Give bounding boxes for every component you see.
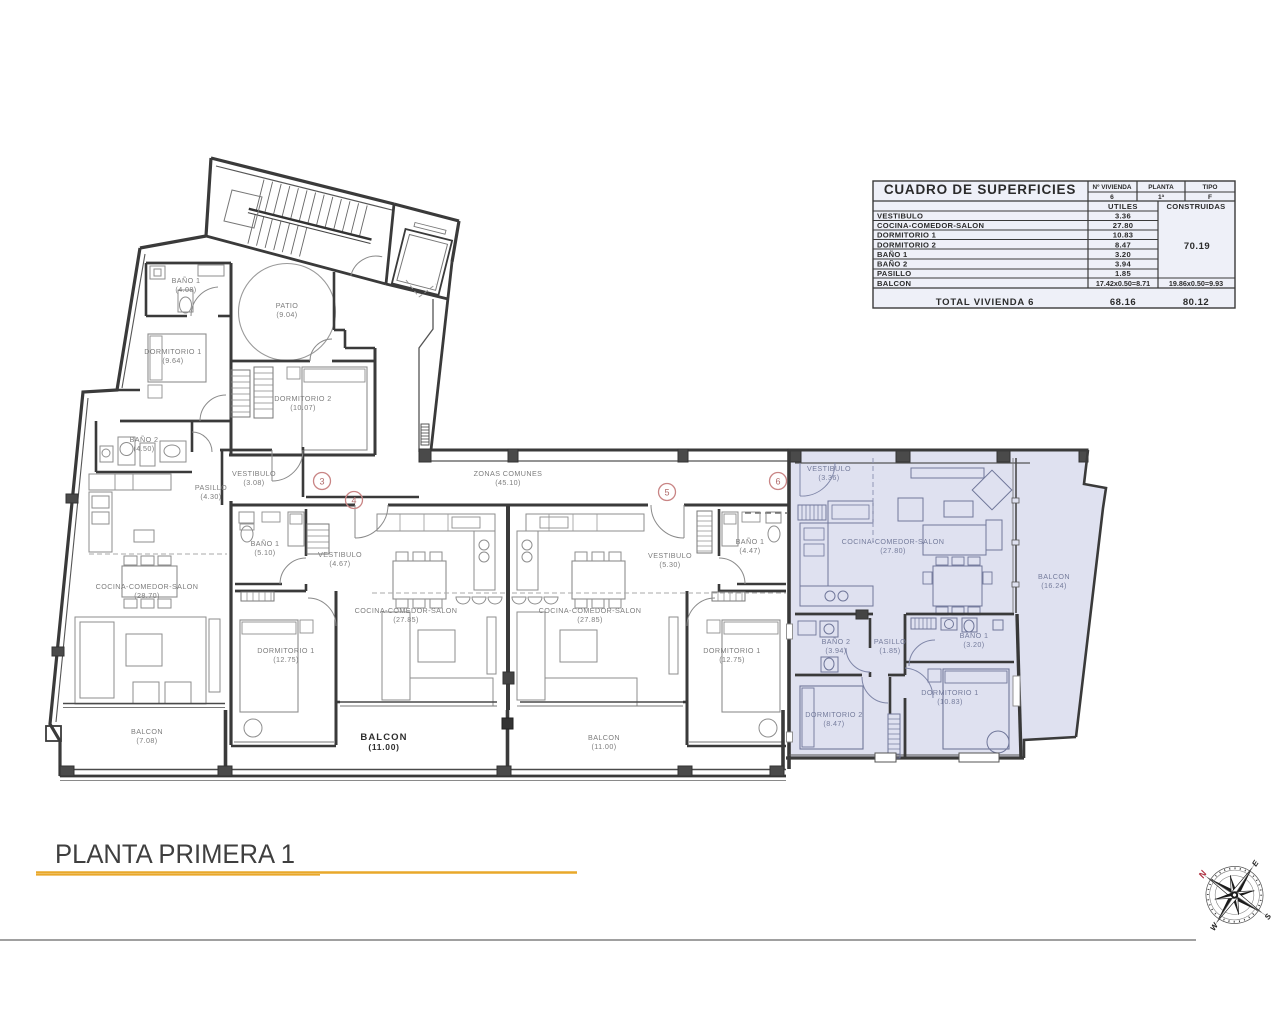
svg-text:BALCON: BALCON [877,279,911,288]
svg-text:8.47: 8.47 [1115,240,1131,249]
svg-text:(10.07): (10.07) [290,403,316,412]
svg-text:3: 3 [319,477,324,487]
svg-text:PASILLO: PASILLO [874,637,906,646]
svg-text:(27.85): (27.85) [393,615,419,624]
svg-text:1.85: 1.85 [1115,269,1131,278]
svg-text:TIPO: TIPO [1203,184,1218,191]
svg-text:(5.30): (5.30) [659,560,680,569]
svg-text:(9.64): (9.64) [162,356,183,365]
svg-text:3.36: 3.36 [1115,212,1131,221]
svg-text:1ª: 1ª [1158,194,1165,201]
svg-text:PATIO: PATIO [276,301,299,310]
svg-text:(27.80): (27.80) [880,546,906,555]
svg-text:(4.67): (4.67) [329,559,350,568]
svg-text:DORMITORIO 1: DORMITORIO 1 [877,231,937,240]
svg-text:(10.83): (10.83) [937,697,963,706]
svg-text:(12.75): (12.75) [719,655,745,664]
svg-text:17.42x0.50=8.71: 17.42x0.50=8.71 [1096,279,1150,288]
svg-text:COCINA-COMEDOR-SALON: COCINA-COMEDOR-SALON [877,221,984,230]
svg-text:80.12: 80.12 [1183,297,1209,308]
svg-text:DORMITORIO 1: DORMITORIO 1 [921,688,978,697]
svg-text:BALCON: BALCON [131,727,163,736]
svg-text:BAÑO 2: BAÑO 2 [822,637,851,646]
svg-text:19.86x0.50=9.93: 19.86x0.50=9.93 [1169,279,1223,288]
svg-text:(8.47): (8.47) [823,719,844,728]
svg-text:(4.08): (4.08) [175,285,196,294]
svg-text:6: 6 [1110,194,1114,201]
svg-text:BALCON: BALCON [1038,572,1070,581]
svg-text:(4.50): (4.50) [133,444,154,453]
svg-text:VESTIBULO: VESTIBULO [648,551,692,560]
svg-text:27.80: 27.80 [1113,221,1134,230]
svg-text:(1.85): (1.85) [879,646,900,655]
svg-text:(4.30): (4.30) [200,492,221,501]
svg-text:BAÑO 1: BAÑO 1 [251,539,280,548]
svg-text:(3.36): (3.36) [818,473,839,482]
svg-text:3.20: 3.20 [1115,250,1131,259]
svg-text:(4.47): (4.47) [739,546,760,555]
svg-text:(11.00): (11.00) [368,742,399,752]
svg-text:(3.20): (3.20) [963,640,984,649]
svg-text:COCINA-COMEDOR-SALON: COCINA-COMEDOR-SALON [539,606,642,615]
svg-text:(12.75): (12.75) [273,655,299,664]
svg-text:(7.08): (7.08) [136,736,157,745]
svg-text:DORMITORIO 2: DORMITORIO 2 [877,240,936,249]
svg-text:Nº VIVIENDA: Nº VIVIENDA [1093,184,1132,191]
svg-text:6: 6 [775,477,780,487]
svg-text:BALCON: BALCON [588,733,620,742]
svg-text:COCINA-COMEDOR-SALON: COCINA-COMEDOR-SALON [842,537,945,546]
svg-text:VESTIBULO: VESTIBULO [318,550,362,559]
svg-text:CUADRO DE SUPERFICIES: CUADRO DE SUPERFICIES [884,182,1076,197]
svg-text:(9.04): (9.04) [276,310,297,319]
svg-text:VESTIBULO: VESTIBULO [232,469,276,478]
svg-text:ZONAS COMUNES: ZONAS COMUNES [474,469,543,478]
svg-text:3.94: 3.94 [1115,260,1131,269]
svg-text:(27.85): (27.85) [577,615,603,624]
svg-text:PLANTA: PLANTA [1148,184,1174,191]
svg-text:5: 5 [664,488,669,498]
svg-text:(5.10): (5.10) [254,548,275,557]
svg-text:DORMITORIO 1: DORMITORIO 1 [144,347,201,356]
svg-text:BAÑO 1: BAÑO 1 [960,631,989,640]
svg-text:VESTIBULO: VESTIBULO [877,212,923,221]
svg-text:PASILLO: PASILLO [195,483,227,492]
svg-text:DORMITORIO 2: DORMITORIO 2 [805,710,862,719]
svg-text:(11.00): (11.00) [591,742,616,751]
svg-text:70.19: 70.19 [1184,241,1210,252]
svg-text:PASILLO: PASILLO [877,269,911,278]
svg-text:10.83: 10.83 [1113,231,1134,240]
svg-text:BAÑO 2: BAÑO 2 [877,260,908,269]
svg-text:68.16: 68.16 [1110,297,1136,308]
svg-text:COCINA-COMEDOR-SALON: COCINA-COMEDOR-SALON [355,606,458,615]
svg-text:VESTIBULO: VESTIBULO [807,464,851,473]
svg-text:BAÑO 2: BAÑO 2 [130,435,159,444]
svg-text:F: F [1208,194,1212,201]
svg-text:4: 4 [351,496,356,506]
svg-text:PLANTA PRIMERA 1: PLANTA PRIMERA 1 [55,839,295,869]
svg-text:DORMITORIO 1: DORMITORIO 1 [703,646,760,655]
svg-text:COCINA-COMEDOR-SALON: COCINA-COMEDOR-SALON [96,582,199,591]
svg-text:DORMITORIO 1: DORMITORIO 1 [257,646,314,655]
svg-text:UTILES: UTILES [1108,202,1138,211]
svg-text:(3.94): (3.94) [825,646,846,655]
svg-text:BAÑO 1: BAÑO 1 [736,537,765,546]
svg-text:(45.10): (45.10) [495,478,521,487]
svg-text:BAÑO 1: BAÑO 1 [877,250,908,259]
svg-text:(16.24): (16.24) [1041,581,1067,590]
svg-text:(28.70): (28.70) [134,591,160,600]
svg-text:(3.08): (3.08) [243,478,264,487]
svg-text:DORMITORIO 2: DORMITORIO 2 [274,394,331,403]
svg-text:BAÑO 1: BAÑO 1 [172,276,201,285]
svg-text:CONSTRUIDAS: CONSTRUIDAS [1167,202,1226,211]
svg-text:TOTAL VIVIENDA 6: TOTAL VIVIENDA 6 [936,297,1035,308]
